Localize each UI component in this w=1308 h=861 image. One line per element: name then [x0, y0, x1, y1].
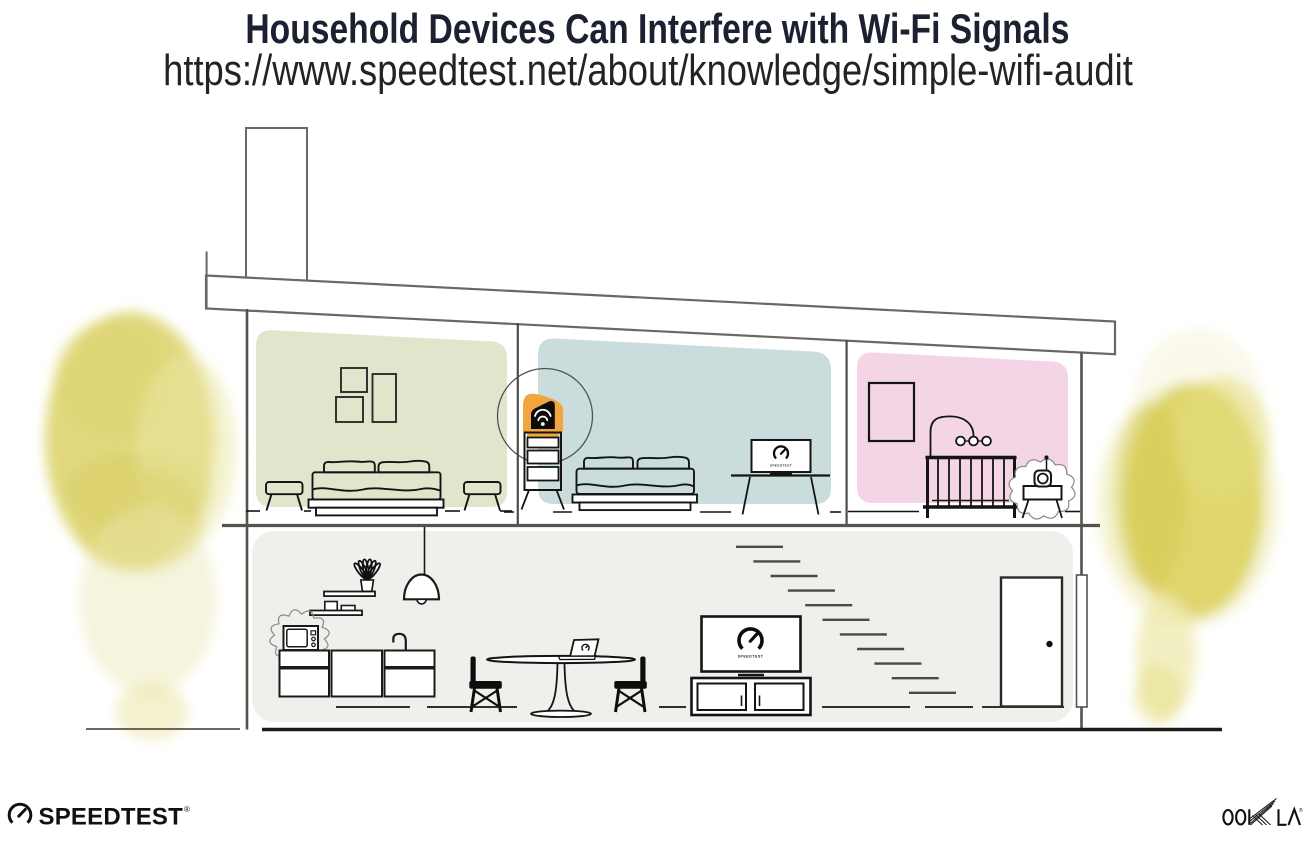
svg-text:®: ® [184, 805, 190, 814]
svg-text:SPEEDTEST: SPEEDTEST [39, 804, 184, 831]
svg-text:®: ® [1299, 807, 1303, 814]
svg-text:SPEEDTEST: SPEEDTEST [738, 655, 764, 659]
svg-text:SPEEDTEST: SPEEDTEST [770, 464, 792, 468]
